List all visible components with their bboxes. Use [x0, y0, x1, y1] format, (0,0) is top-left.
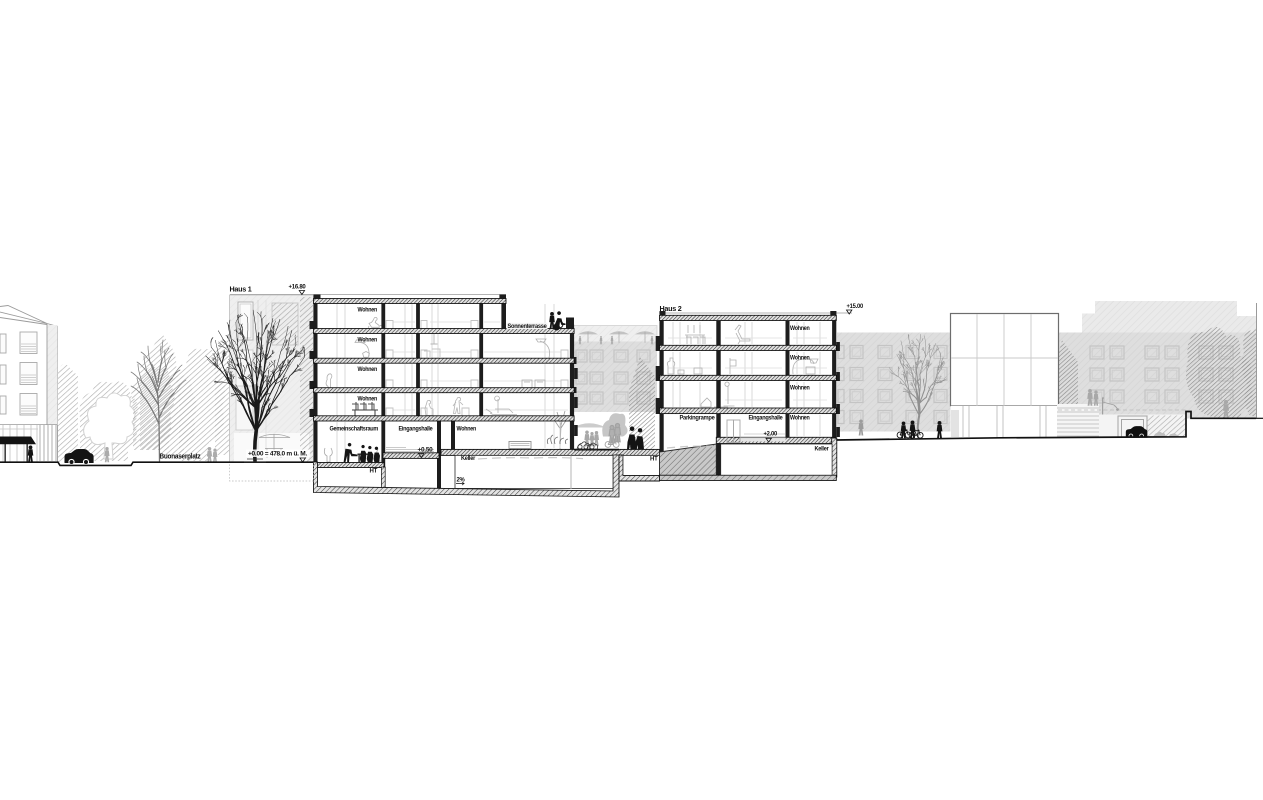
- svg-text:Wohnen: Wohnen: [790, 385, 810, 392]
- svg-text:+16.80: +16.80: [289, 285, 307, 291]
- svg-text:+0.00 = 478.0 m ü. M.: +0.00 = 478.0 m ü. M.: [248, 452, 308, 458]
- svg-text:Wohnen: Wohnen: [457, 426, 477, 433]
- svg-text:Parkingrampe: Parkingrampe: [680, 415, 716, 422]
- svg-text:HT: HT: [370, 468, 378, 475]
- svg-text:Keller: Keller: [461, 455, 476, 462]
- svg-text:Wohnen: Wohnen: [358, 366, 378, 373]
- svg-text:Buonaserplatz: Buonaserplatz: [160, 454, 202, 461]
- svg-text:Wohnen: Wohnen: [790, 325, 810, 332]
- svg-text:HT: HT: [650, 456, 658, 463]
- svg-text:Haus 1: Haus 1: [230, 287, 252, 294]
- svg-text:Sonnenterrasse: Sonnenterrasse: [508, 323, 548, 330]
- svg-text:Eingangshalle: Eingangshalle: [749, 415, 784, 422]
- svg-text:Wohnen: Wohnen: [358, 396, 378, 403]
- svg-text:+15.00: +15.00: [847, 304, 864, 310]
- svg-text:+0.50: +0.50: [418, 448, 434, 454]
- svg-text:Keller: Keller: [815, 446, 830, 453]
- svg-text:Wohnen: Wohnen: [358, 307, 378, 314]
- svg-text:Gemeinschaftsraum: Gemeinschaftsraum: [330, 426, 379, 433]
- svg-text:Haus 2: Haus 2: [660, 306, 682, 313]
- svg-text:2%: 2%: [457, 478, 466, 484]
- svg-text:Wohnen: Wohnen: [358, 337, 378, 344]
- svg-text:Wohnen: Wohnen: [790, 355, 810, 362]
- svg-text:Wohnen: Wohnen: [790, 415, 810, 422]
- svg-text:Eingangshalle: Eingangshalle: [399, 426, 434, 433]
- svg-text:+2.00: +2.00: [764, 432, 778, 438]
